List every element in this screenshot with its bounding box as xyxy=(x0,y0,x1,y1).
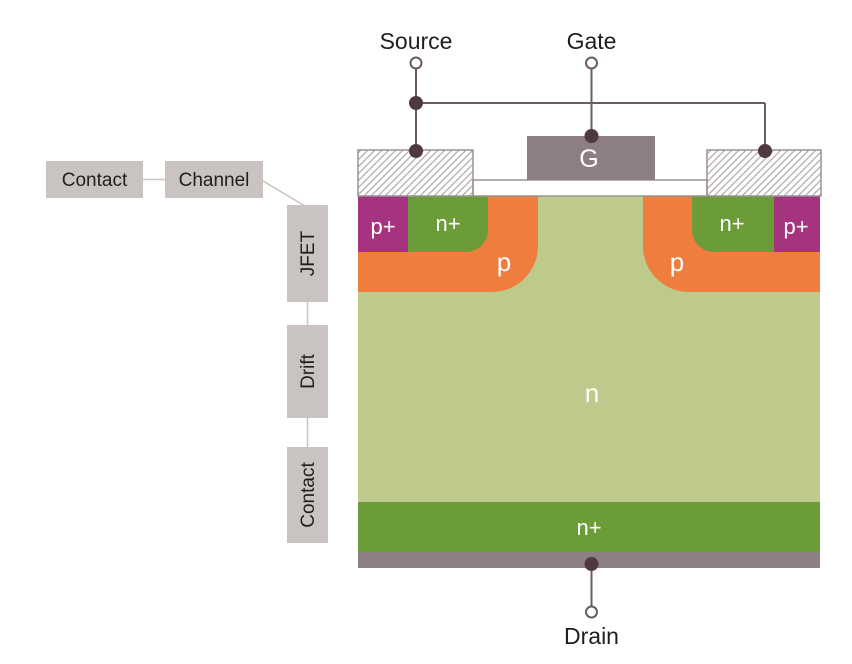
source-contact-left-node xyxy=(409,144,423,158)
gate-node xyxy=(585,129,599,143)
p-well-right-label: p xyxy=(670,247,684,277)
annotation-drift-label: Drift xyxy=(298,353,319,389)
drain-label: Drain xyxy=(564,623,619,649)
p-plus-right-label: p+ xyxy=(783,214,808,239)
gate-electrode-label: G xyxy=(579,145,598,173)
drain-terminal-circle xyxy=(586,607,597,618)
n-plus-right-label: n+ xyxy=(719,211,744,236)
p-well-left-label: p xyxy=(497,247,511,277)
annotation-contact-bottom-label: Contact xyxy=(298,462,319,528)
n-plus-substrate-label: n+ xyxy=(576,515,601,540)
drain-node xyxy=(585,557,599,571)
gate-oxide-layer xyxy=(473,180,707,196)
source-junction-node xyxy=(409,96,423,110)
diagram-canvas: Source Gate Drain G p+ n+ p n p n+ p+ n+… xyxy=(0,0,852,664)
mosfet-cross-section-diagram: Source Gate Drain G p+ n+ p n p n+ p+ n+… xyxy=(0,0,852,664)
source-terminal-circle xyxy=(411,58,422,69)
annotation-contact-top-label: Contact xyxy=(62,170,128,191)
n-plus-left-label: n+ xyxy=(435,211,460,236)
gate-label: Gate xyxy=(567,28,617,54)
n-drift-label: n xyxy=(585,378,599,408)
source-contact-right-node xyxy=(758,144,772,158)
annotation-channel-label: Channel xyxy=(179,170,250,191)
annotation-chain: Contact Channel JFET Drift Contact xyxy=(46,161,328,543)
connector-channel-jfet xyxy=(263,181,305,206)
p-plus-left-label: p+ xyxy=(370,214,395,239)
gate-terminal-circle xyxy=(586,58,597,69)
source-label: Source xyxy=(380,28,453,54)
annotation-jfet-label: JFET xyxy=(298,230,319,276)
